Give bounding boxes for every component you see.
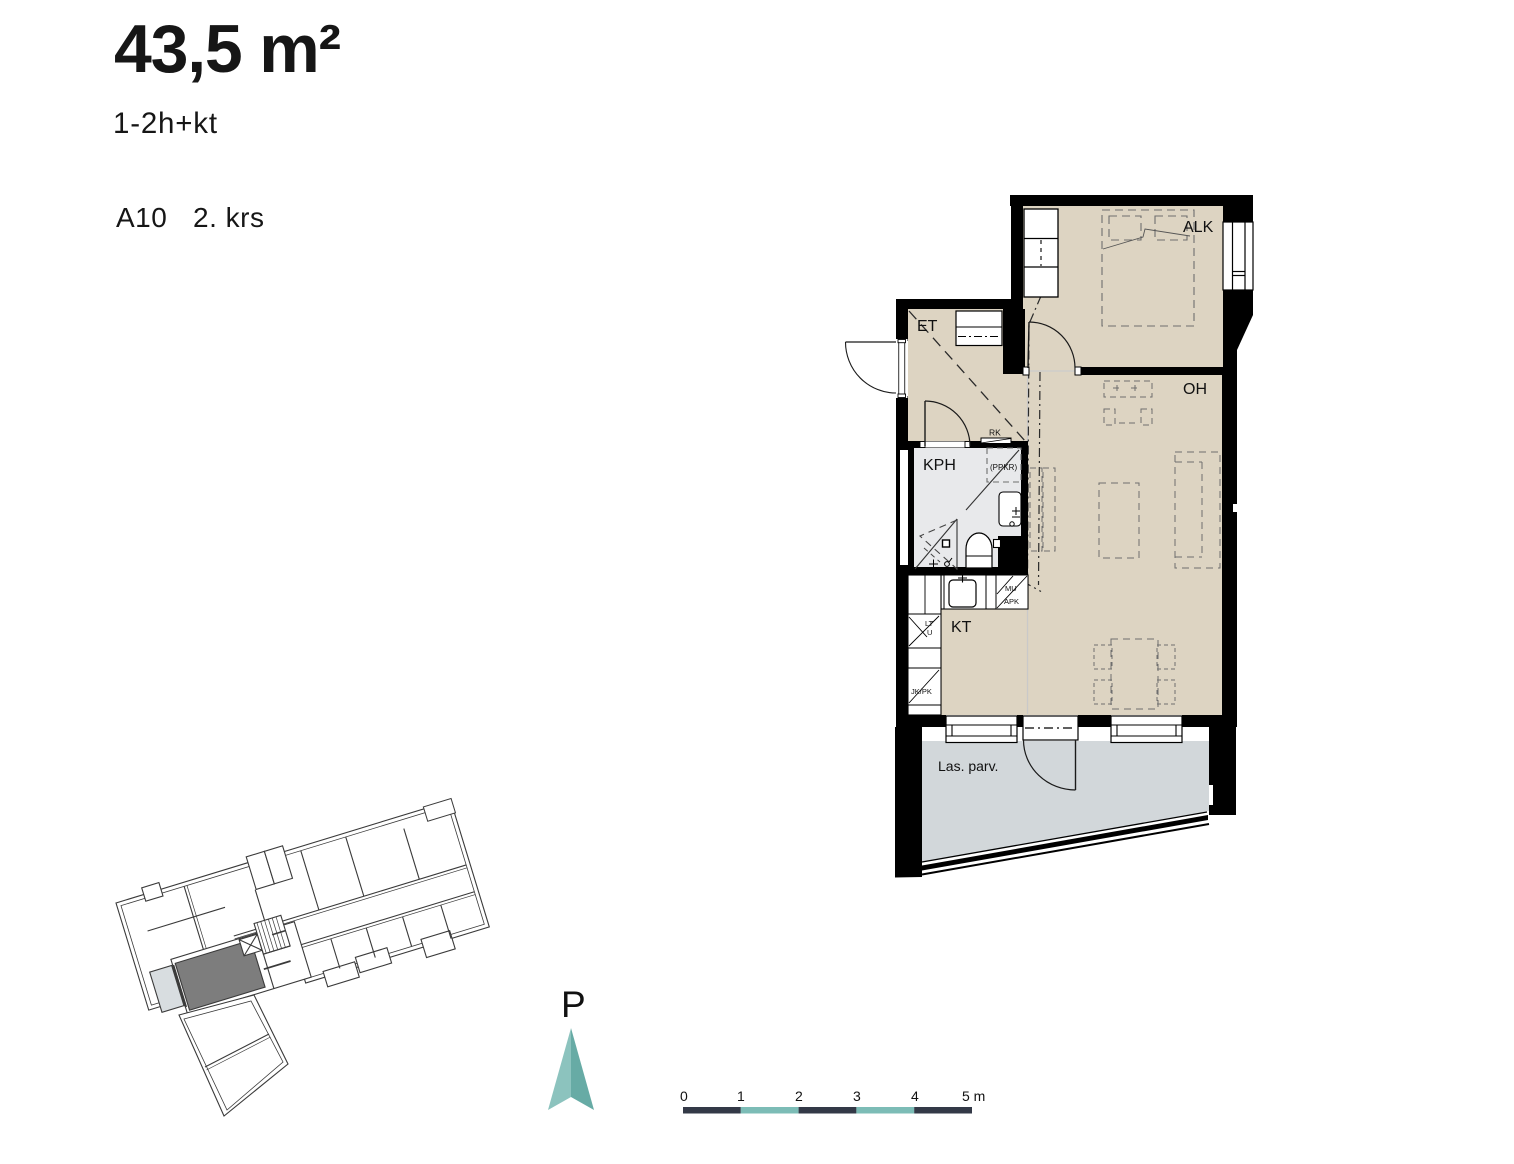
- svg-text:43,5 m²: 43,5 m²: [114, 11, 341, 87]
- svg-text:2. krs: 2. krs: [193, 202, 264, 233]
- svg-text:0: 0: [680, 1088, 688, 1104]
- svg-text:3: 3: [853, 1088, 861, 1104]
- svg-text:ALK: ALK: [1183, 219, 1214, 236]
- svg-text:ET: ET: [917, 318, 938, 335]
- svg-text:KPH: KPH: [923, 457, 956, 474]
- svg-text:5 m: 5 m: [962, 1088, 985, 1104]
- svg-text:Las. parv.: Las. parv.: [938, 758, 998, 774]
- svg-text:4: 4: [911, 1088, 919, 1104]
- svg-text:KT: KT: [951, 619, 972, 636]
- svg-text:1: 1: [737, 1088, 745, 1104]
- svg-text:APK: APK: [1004, 597, 1019, 606]
- svg-text:RK: RK: [989, 428, 1001, 438]
- svg-text:LT: LT: [925, 619, 934, 628]
- svg-text:2: 2: [795, 1088, 803, 1104]
- svg-text:U: U: [927, 628, 932, 637]
- svg-text:OH: OH: [1183, 381, 1207, 398]
- svg-text:MU: MU: [1005, 584, 1017, 593]
- svg-text:1-2h+kt: 1-2h+kt: [113, 107, 218, 140]
- svg-text:A10: A10: [116, 202, 167, 233]
- svg-text:(PPKR): (PPKR): [990, 463, 1017, 472]
- svg-text:P: P: [561, 984, 586, 1025]
- svg-text:JK/PK: JK/PK: [911, 687, 932, 696]
